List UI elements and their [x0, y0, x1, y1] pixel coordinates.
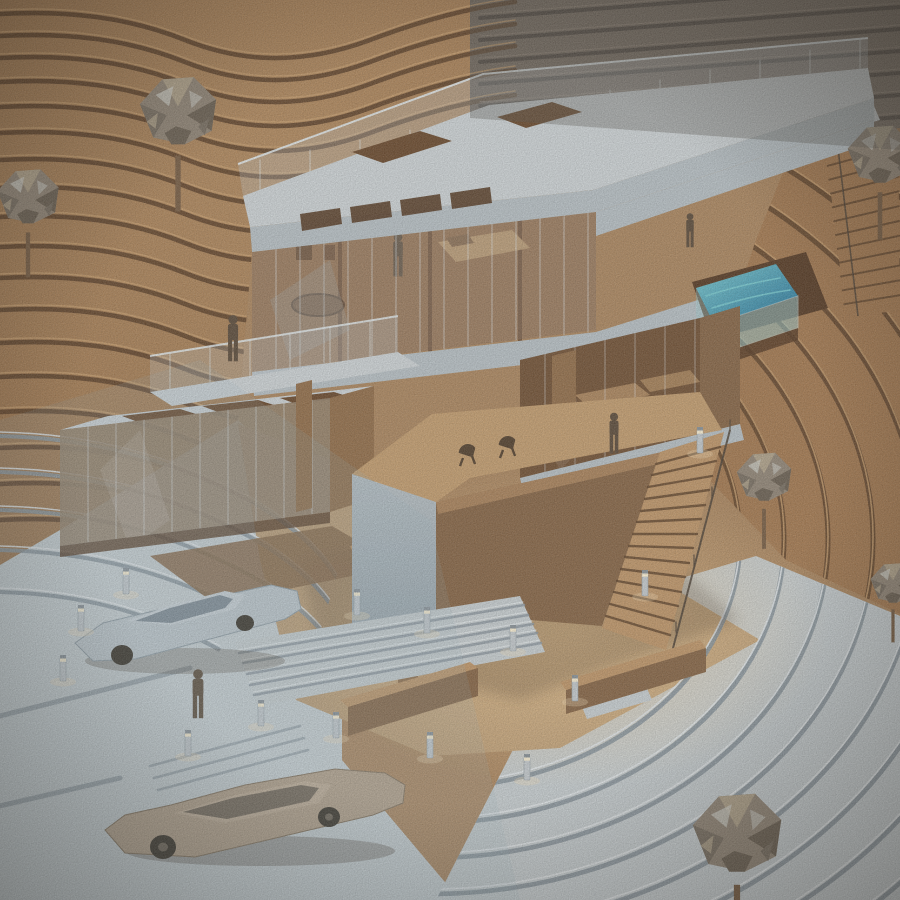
- vignette: [0, 0, 900, 900]
- render-canvas: [0, 0, 900, 900]
- architectural-render-image: [0, 0, 900, 900]
